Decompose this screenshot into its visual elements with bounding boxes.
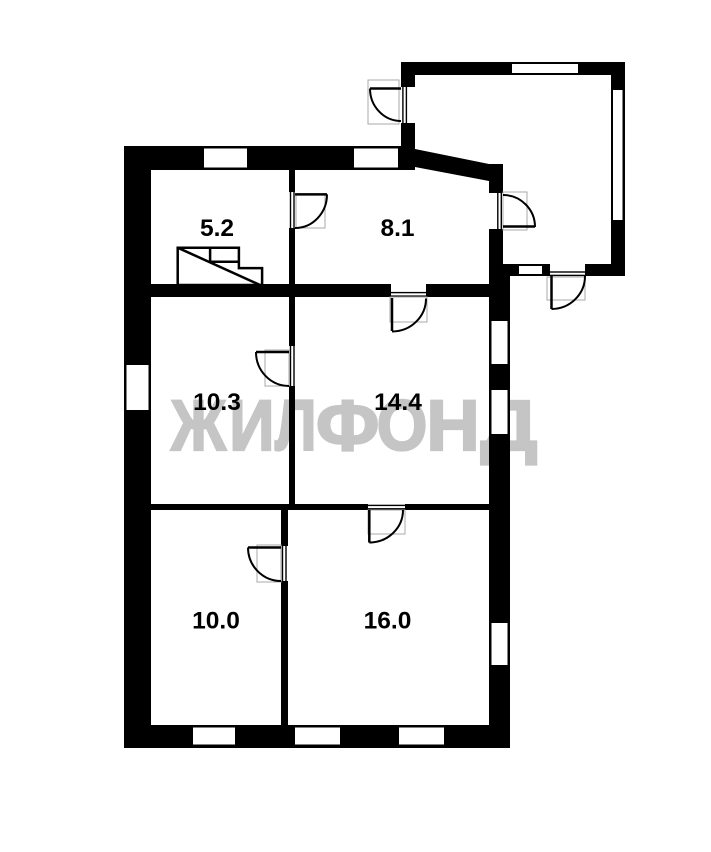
svg-text:10.0: 10.0: [192, 608, 240, 635]
svg-text:5.2: 5.2: [200, 215, 234, 242]
svg-text:Л: Л: [275, 387, 317, 466]
svg-text:10.3: 10.3: [193, 389, 241, 416]
svg-text:16.0: 16.0: [364, 608, 412, 635]
svg-text:14.4: 14.4: [374, 389, 422, 416]
svg-text:Н: Н: [426, 387, 479, 466]
svg-text:Ф: Ф: [316, 387, 379, 466]
svg-text:8.1: 8.1: [380, 215, 414, 242]
